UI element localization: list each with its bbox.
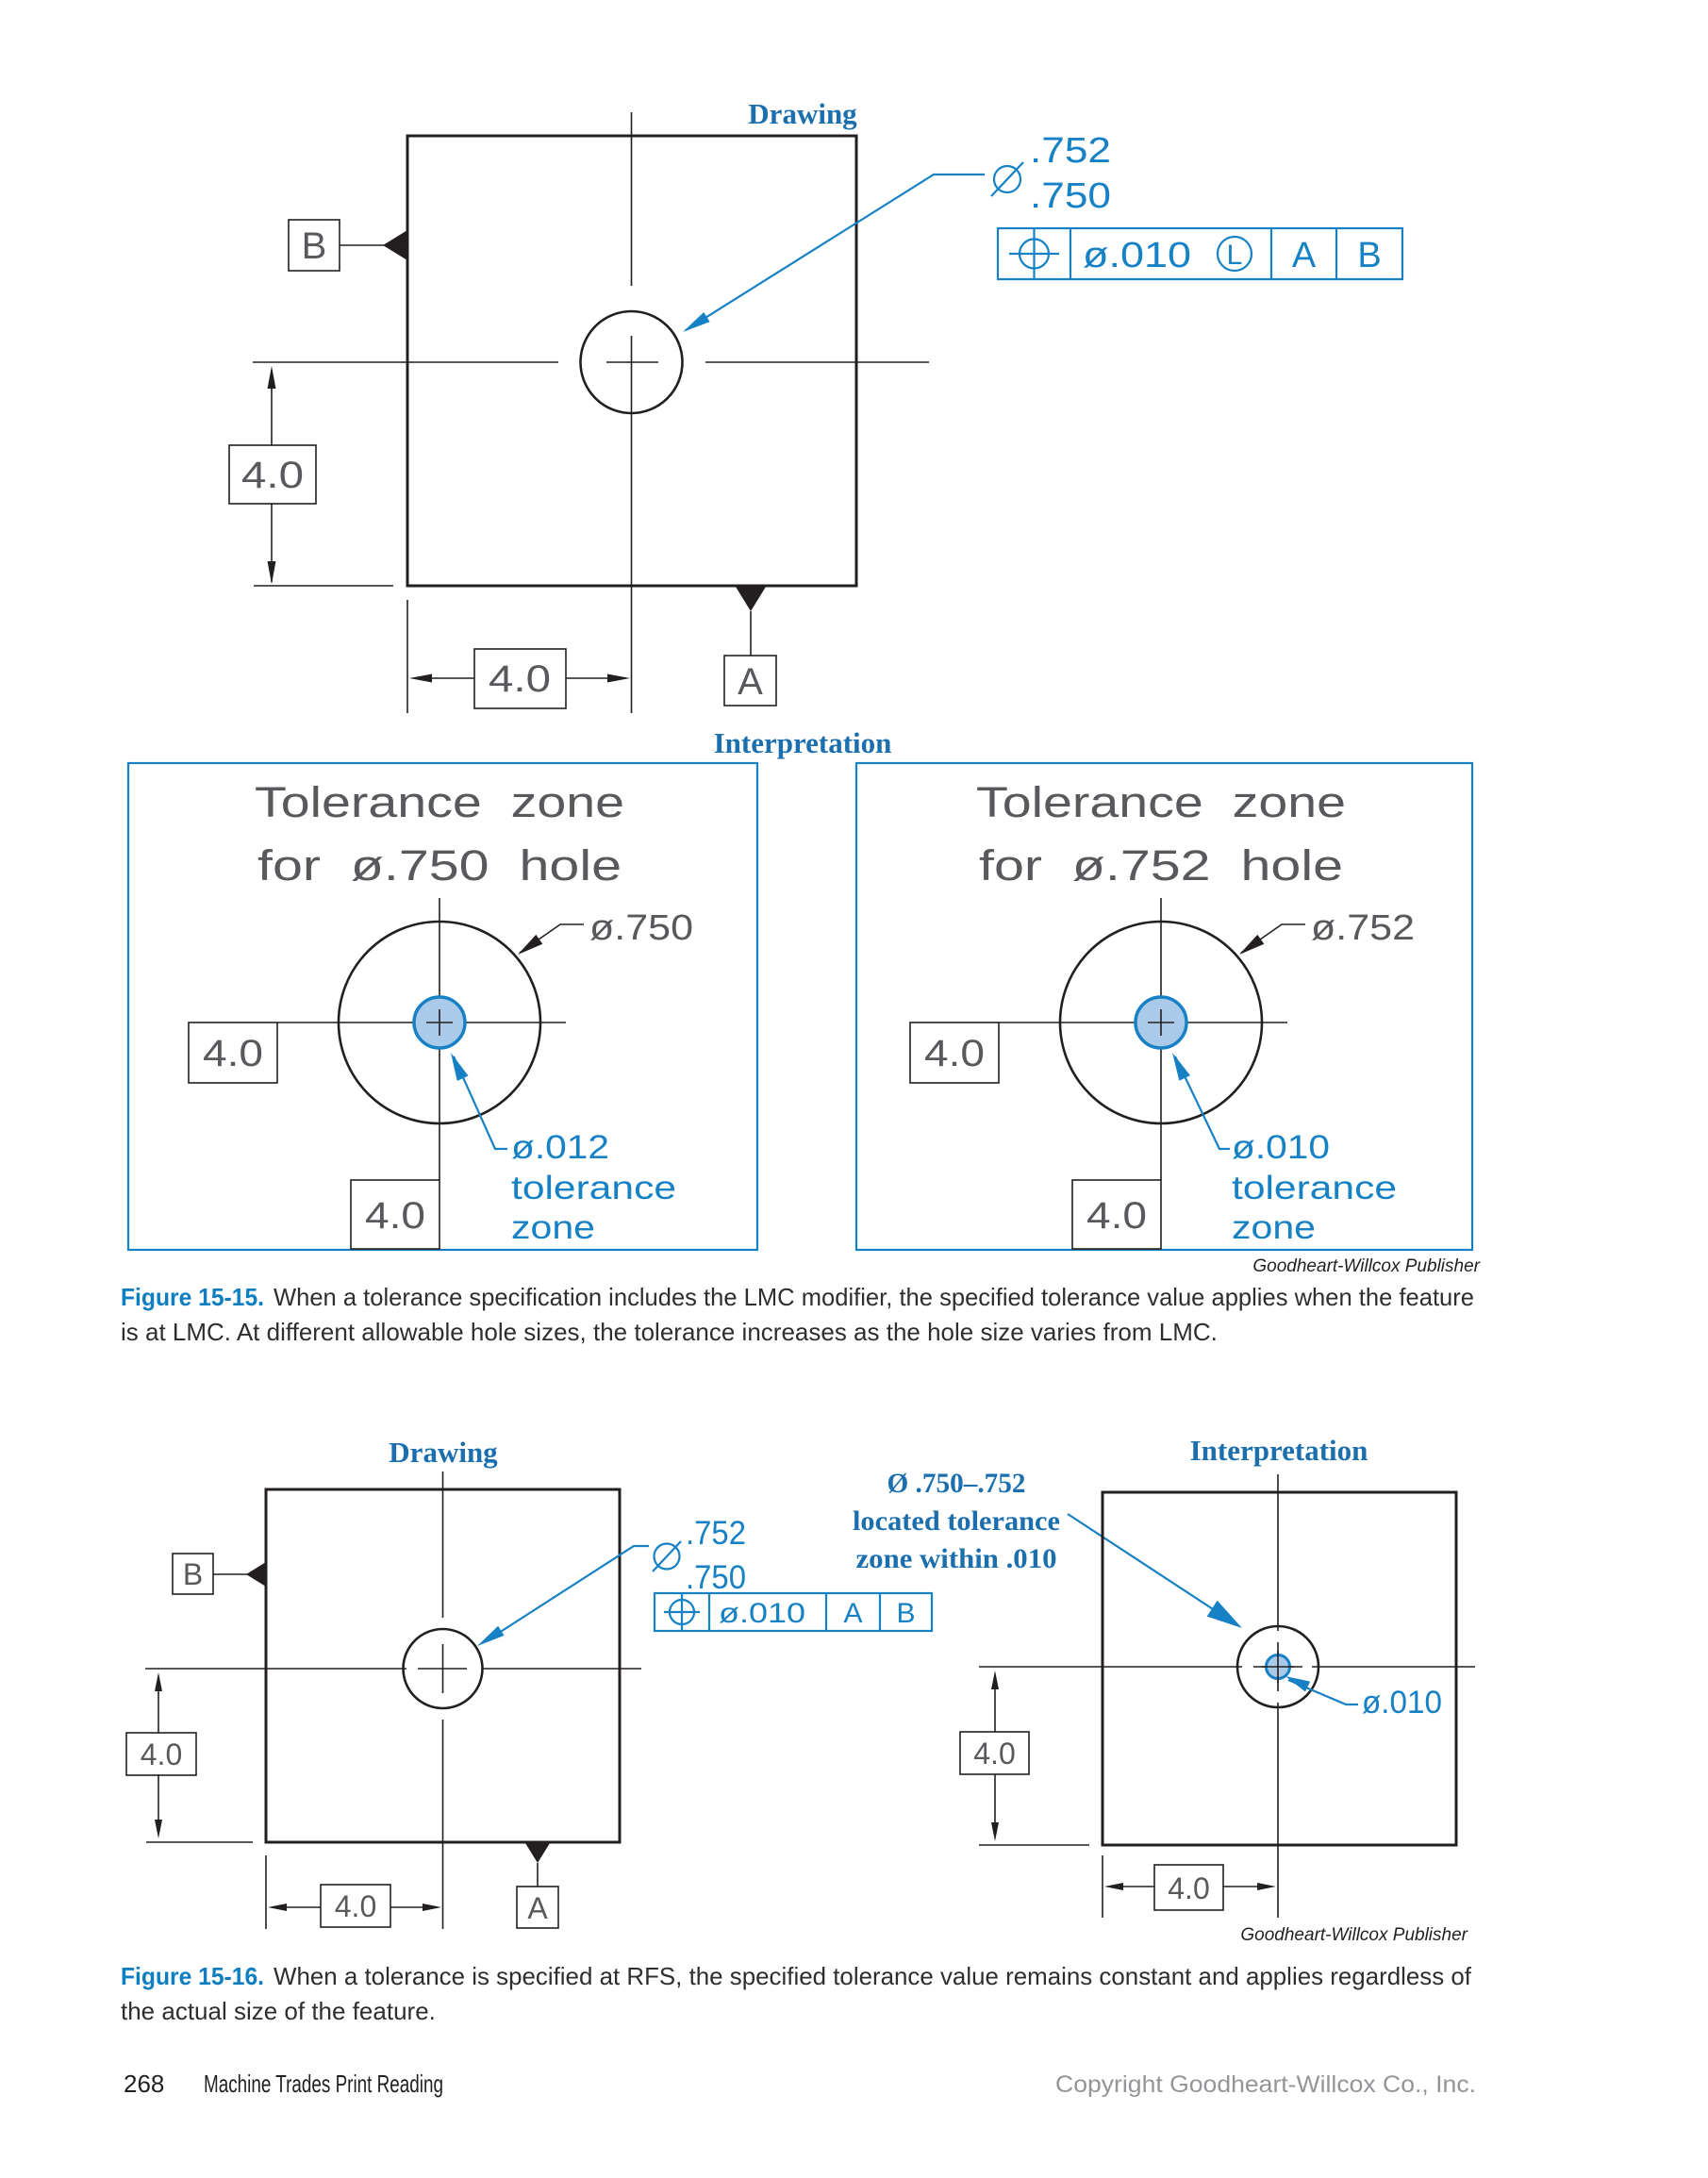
svg-text:4.0: 4.0: [1086, 1195, 1147, 1237]
svg-text:.750: .750: [686, 1559, 746, 1596]
svg-text:Machine Trades Print Reading: Machine Trades Print Reading: [204, 2070, 443, 2098]
svg-text:Ø .750–.752: Ø .750–.752: [887, 1468, 1026, 1499]
svg-text:tolerance: tolerance: [511, 1170, 676, 1206]
svg-text:Figure 15-15.: Figure 15-15.: [121, 1283, 264, 1311]
svg-text:B: B: [302, 225, 327, 267]
svg-text:4.0: 4.0: [924, 1033, 985, 1074]
svg-text:ø.010: ø.010: [719, 1598, 805, 1629]
svg-text:ø.010: ø.010: [1232, 1129, 1330, 1166]
svg-text:4.0: 4.0: [973, 1737, 1015, 1771]
svg-text:When a tolerance specification: When a tolerance specification includes …: [274, 1283, 1474, 1311]
svg-text:for ø.750 hole: for ø.750 hole: [257, 841, 622, 889]
svg-text:zone: zone: [1232, 1209, 1316, 1246]
svg-text:.750: .750: [1030, 176, 1111, 216]
svg-text:Tolerance zone: Tolerance zone: [976, 778, 1346, 826]
svg-text:Tolerance zone: Tolerance zone: [255, 778, 624, 826]
svg-text:.752: .752: [686, 1515, 746, 1552]
svg-text:268: 268: [124, 2070, 164, 2098]
svg-text:is at LMC. At different allowa: is at LMC. At different allowable hole s…: [121, 1318, 1218, 1346]
svg-text:ø.012: ø.012: [511, 1129, 609, 1166]
svg-text:located tolerance: located tolerance: [853, 1505, 1060, 1537]
svg-text:Interpretation: Interpretation: [714, 726, 892, 759]
svg-text:4.0: 4.0: [203, 1033, 263, 1074]
svg-text:B: B: [1357, 236, 1381, 275]
svg-text:4.0: 4.0: [1168, 1871, 1209, 1905]
svg-text:Goodheart-Willcox Publisher: Goodheart-Willcox Publisher: [1240, 1925, 1468, 1945]
svg-text:ø.010: ø.010: [1083, 236, 1191, 275]
svg-text:Copyright Goodheart-Willcox Co: Copyright Goodheart-Willcox Co., Inc.: [1055, 2071, 1476, 2098]
svg-text:When a tolerance is specified: When a tolerance is specified at RFS, th…: [274, 1962, 1472, 1990]
svg-text:Drawing: Drawing: [748, 97, 857, 130]
svg-text:4.0: 4.0: [365, 1195, 425, 1237]
svg-text:Figure 15-16.: Figure 15-16.: [121, 1962, 264, 1990]
svg-text:ø.752: ø.752: [1311, 908, 1415, 948]
svg-text:zone within .010: zone within .010: [856, 1543, 1057, 1574]
svg-text:zone: zone: [511, 1209, 595, 1246]
svg-text:Interpretation: Interpretation: [1190, 1434, 1368, 1467]
svg-text:4.0: 4.0: [141, 1737, 182, 1771]
svg-text:4.0: 4.0: [489, 658, 551, 700]
svg-text:L: L: [1227, 240, 1243, 271]
svg-text:tolerance: tolerance: [1232, 1170, 1397, 1206]
svg-text:B: B: [183, 1557, 203, 1591]
svg-text:for ø.752 hole: for ø.752 hole: [979, 841, 1343, 889]
svg-text:ø.750: ø.750: [589, 908, 693, 948]
svg-text:A: A: [1292, 236, 1317, 275]
svg-text:A: A: [738, 661, 763, 703]
svg-text:Goodheart-Willcox Publisher: Goodheart-Willcox Publisher: [1252, 1256, 1480, 1276]
svg-text:A: A: [843, 1598, 862, 1629]
svg-text:.752: .752: [1030, 131, 1111, 171]
svg-text:B: B: [896, 1598, 915, 1629]
svg-text:Drawing: Drawing: [389, 1436, 498, 1469]
svg-text:A: A: [527, 1891, 548, 1925]
svg-text:the actual size of the feature: the actual size of the feature.: [121, 1997, 436, 2025]
svg-text:4.0: 4.0: [241, 455, 304, 496]
svg-text:ø.010: ø.010: [1362, 1685, 1442, 1721]
svg-text:4.0: 4.0: [335, 1889, 376, 1923]
